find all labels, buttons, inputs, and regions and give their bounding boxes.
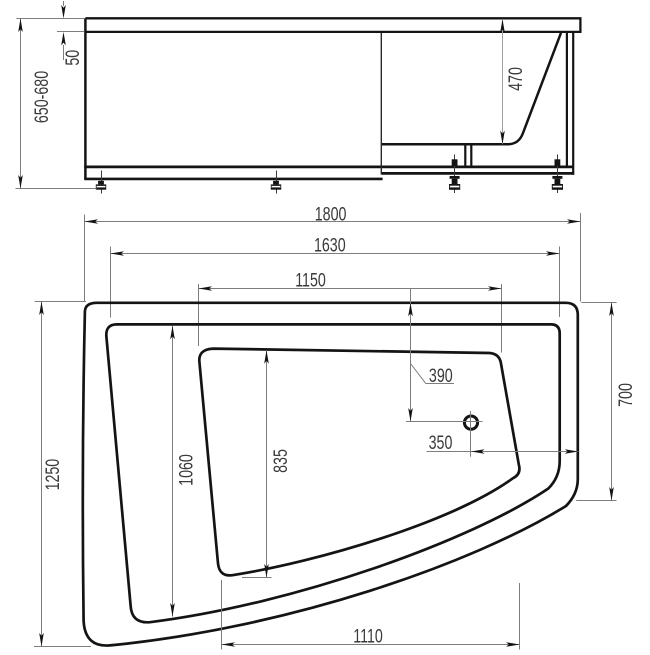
svg-text:700: 700: [615, 383, 637, 407]
svg-text:835: 835: [270, 449, 292, 473]
svg-text:1800: 1800: [315, 203, 347, 225]
svg-text:1060: 1060: [175, 454, 197, 486]
svg-text:650-680: 650-680: [31, 71, 53, 123]
svg-text:50: 50: [62, 50, 84, 66]
svg-text:390: 390: [429, 365, 453, 387]
svg-text:1630: 1630: [314, 234, 346, 256]
svg-text:1110: 1110: [353, 625, 383, 647]
svg-text:470: 470: [505, 67, 527, 91]
svg-text:350: 350: [429, 432, 453, 454]
svg-text:1250: 1250: [42, 459, 64, 491]
svg-text:1150: 1150: [295, 269, 326, 291]
